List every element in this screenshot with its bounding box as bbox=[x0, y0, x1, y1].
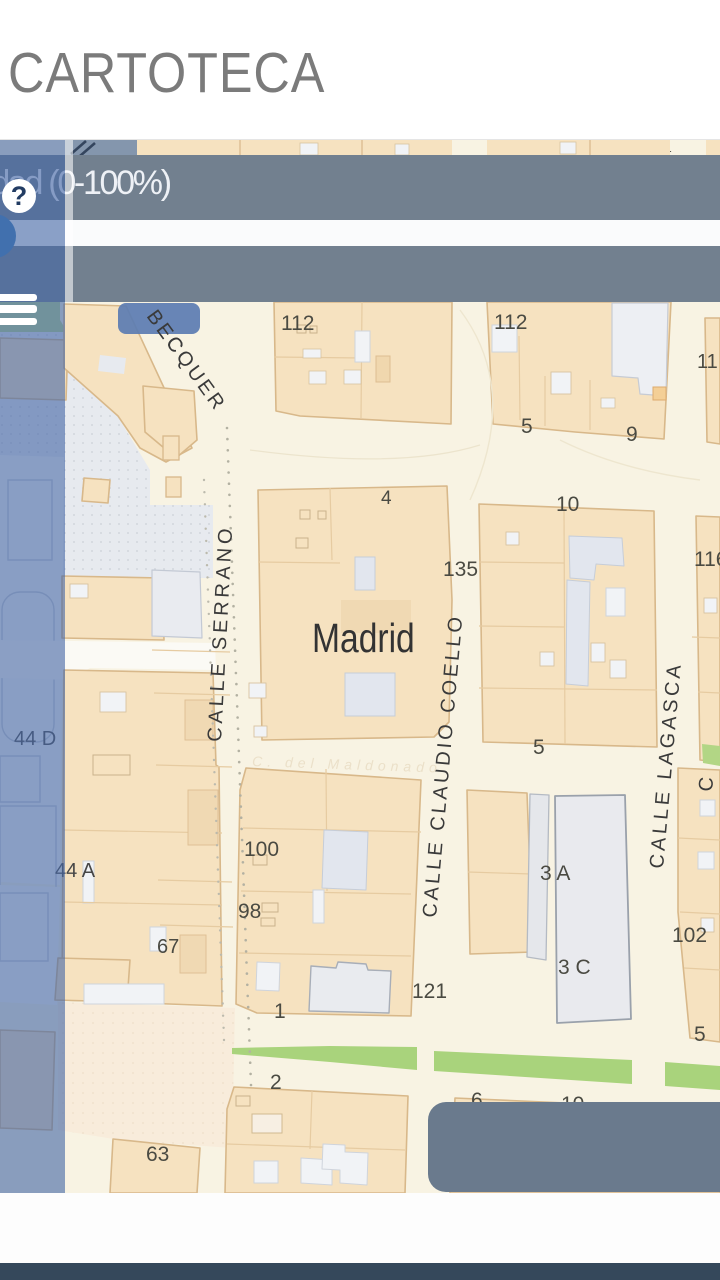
svg-text:C: C bbox=[695, 776, 718, 792]
svg-text:112: 112 bbox=[281, 312, 314, 335]
svg-text:4: 4 bbox=[381, 488, 392, 509]
svg-text:121: 121 bbox=[412, 980, 447, 1003]
svg-text:3 A: 3 A bbox=[540, 862, 570, 885]
svg-text:Madrid: Madrid bbox=[312, 615, 415, 661]
svg-text:67: 67 bbox=[157, 936, 179, 958]
svg-text:5: 5 bbox=[521, 415, 533, 438]
svg-text:11: 11 bbox=[697, 351, 718, 373]
svg-text:100: 100 bbox=[244, 838, 279, 861]
svg-text:10: 10 bbox=[556, 493, 579, 516]
svg-text:102: 102 bbox=[672, 924, 707, 947]
svg-text:5: 5 bbox=[533, 736, 545, 759]
svg-text:116: 116 bbox=[694, 548, 720, 571]
svg-text:9: 9 bbox=[626, 423, 638, 446]
svg-text:112: 112 bbox=[494, 311, 527, 334]
svg-text:135: 135 bbox=[443, 558, 478, 581]
svg-text:3 C: 3 C bbox=[558, 956, 591, 979]
svg-text:5: 5 bbox=[694, 1023, 706, 1046]
svg-text:1: 1 bbox=[274, 1000, 286, 1023]
svg-text:2: 2 bbox=[270, 1071, 282, 1094]
svg-text:98: 98 bbox=[238, 900, 261, 923]
svg-text:63: 63 bbox=[146, 1143, 169, 1166]
